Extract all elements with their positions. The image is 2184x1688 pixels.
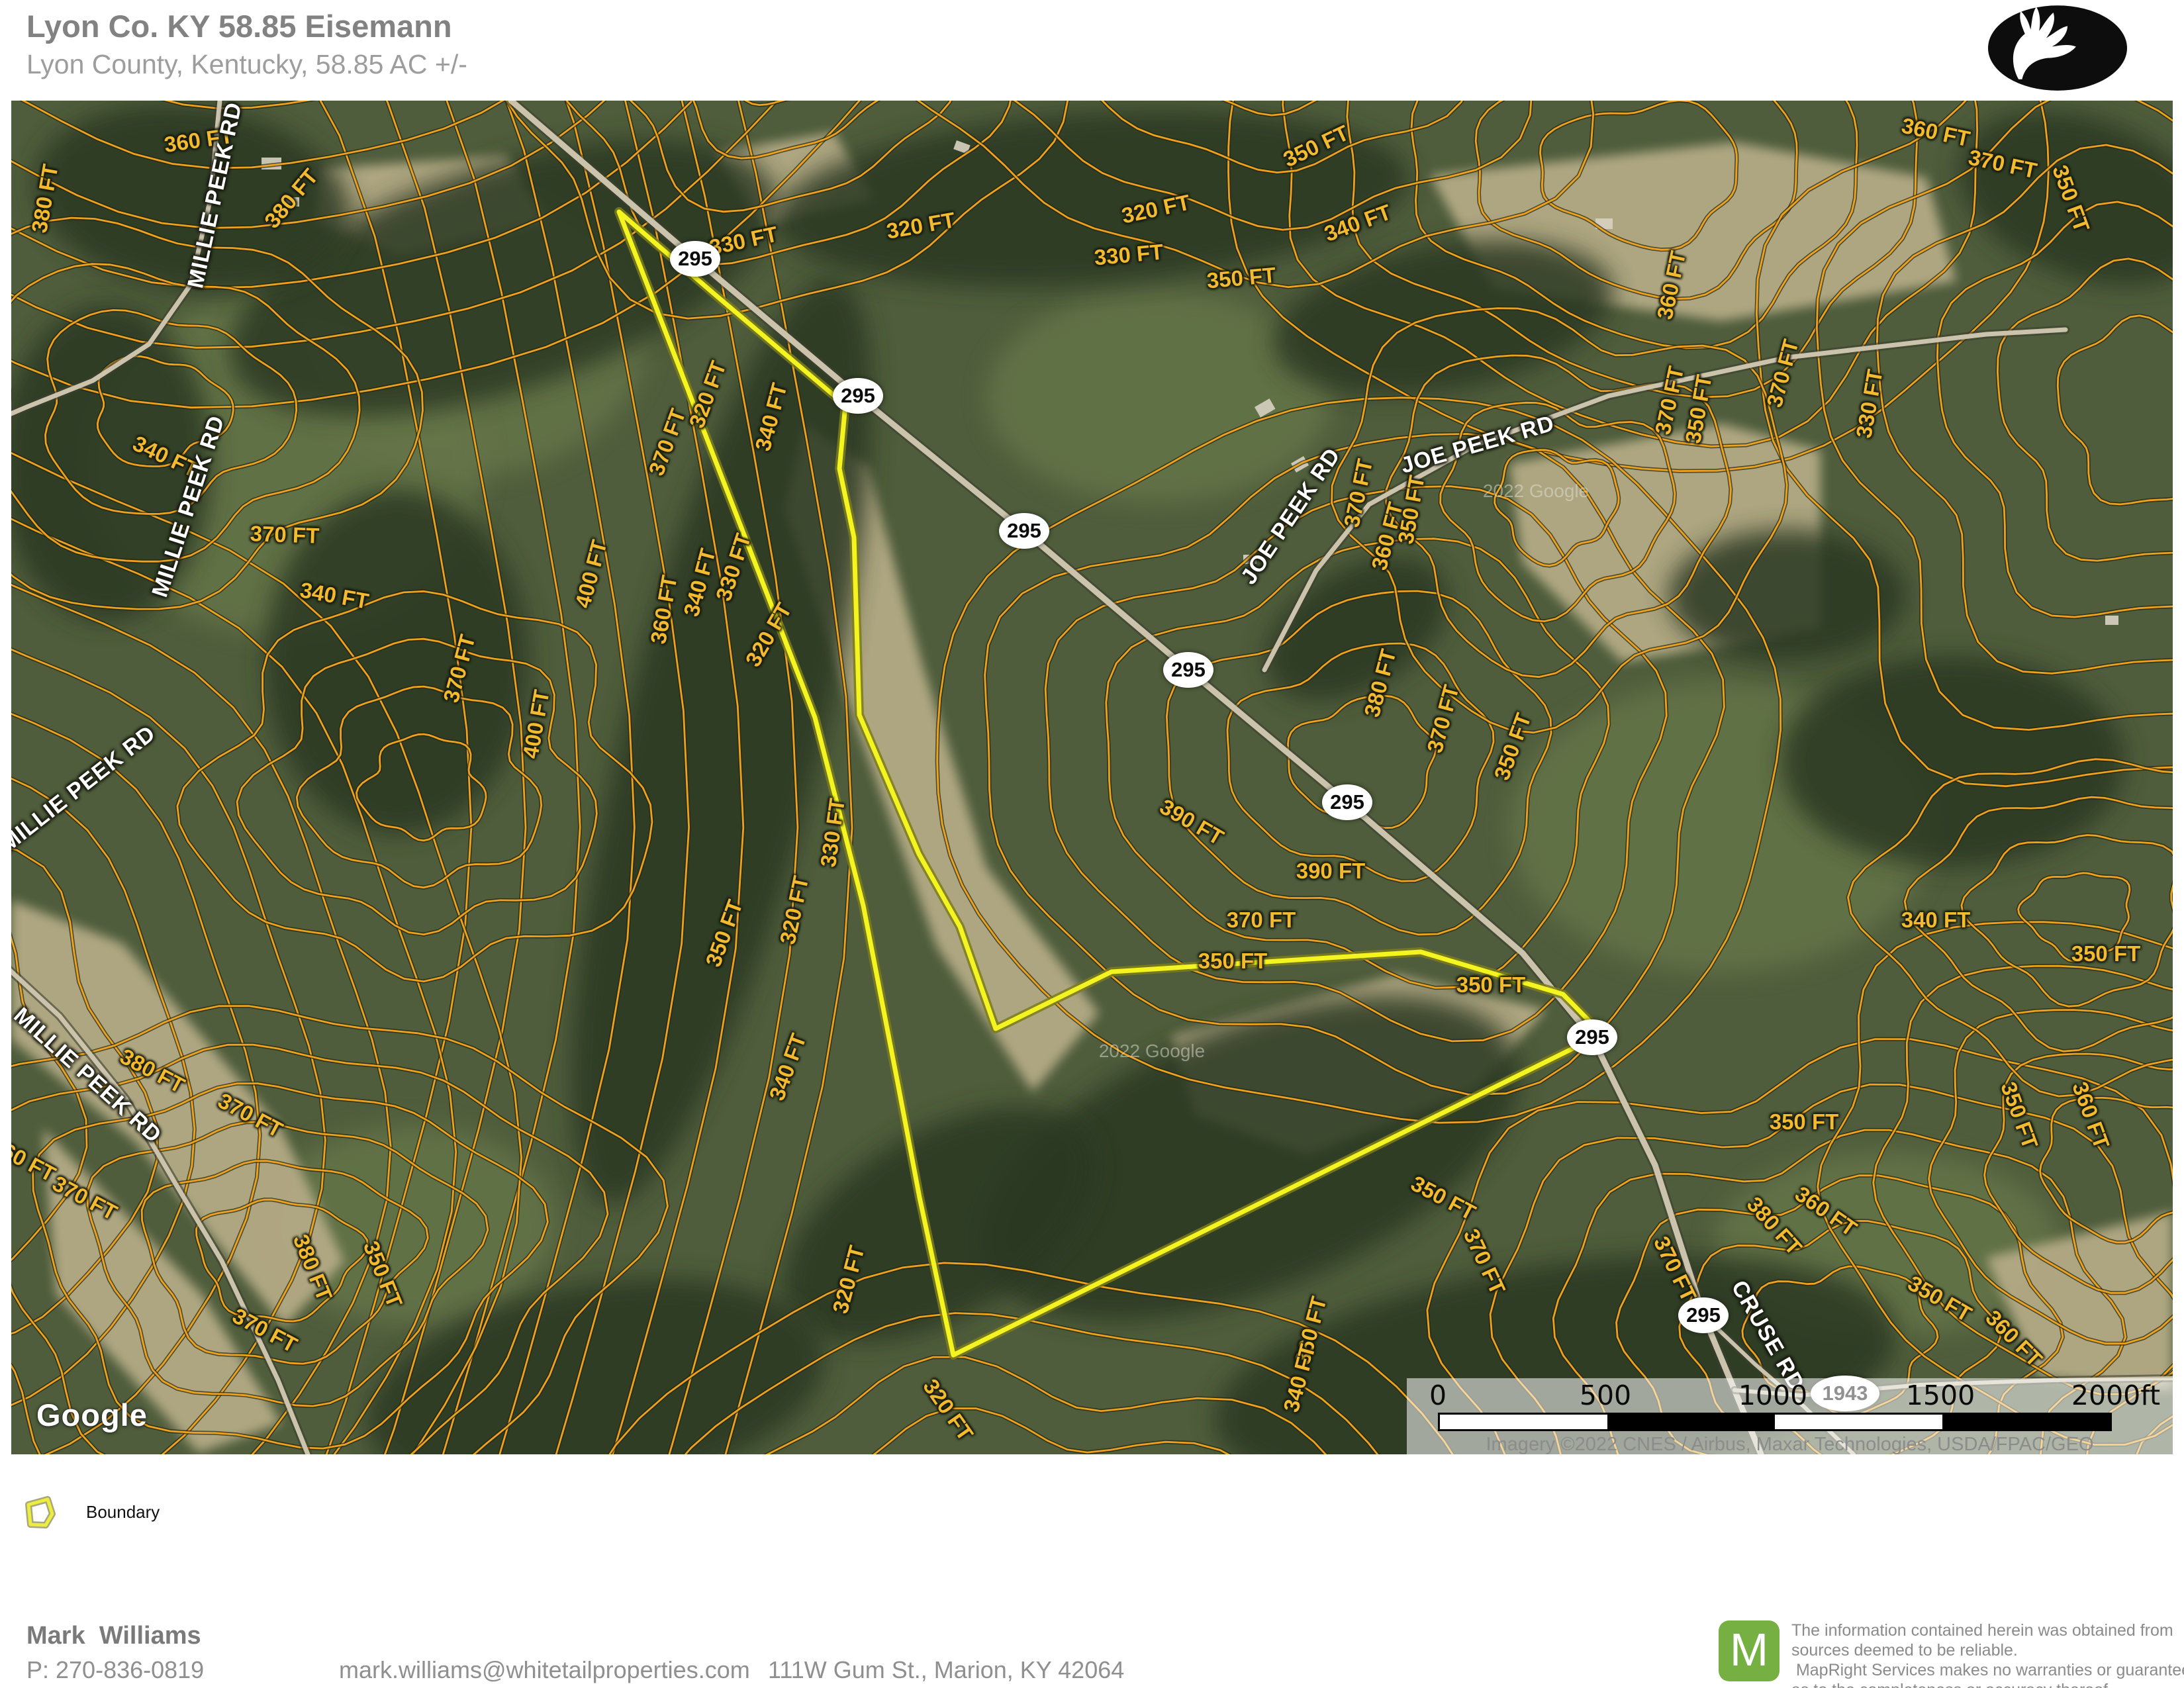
contour-elevation-label: 340 FT	[764, 1030, 811, 1103]
scale-segment	[1942, 1415, 2110, 1429]
contour-elevation-label: 360 FT	[1981, 1305, 2048, 1372]
contour-elevation-label: 350 FT	[1198, 949, 1268, 974]
contour-elevation-label: 340 FT	[1278, 1342, 1321, 1415]
contour-elevation-label: 370 FT	[1339, 457, 1378, 530]
contour-elevation-label: 370 FT	[438, 632, 481, 706]
contour-elevation-label: 320 FT	[918, 1374, 978, 1445]
map-label-layer: 2022 Google2022 Google360 FT380 FT380 FT…	[11, 101, 2173, 1454]
contour-elevation-label: 370 FT	[1966, 145, 2039, 184]
route-shield: 295	[1567, 1019, 1617, 1055]
contour-elevation-label: 350 FT	[358, 1237, 407, 1311]
contour-elevation-label: 370 FT	[228, 1303, 301, 1358]
contour-elevation-label: 370 FT	[1227, 908, 1296, 933]
agent-phone: P: 270-836-0819	[26, 1656, 204, 1684]
contour-elevation-label: 320 FT	[740, 598, 796, 671]
contour-elevation-label: 330 FT	[816, 797, 850, 869]
contour-elevation-label: 370 FT	[48, 1171, 121, 1226]
contour-elevation-label: 350 FT	[1280, 120, 1353, 173]
contour-elevation-label: 340 FT	[1901, 908, 1971, 933]
road-label: JOE PEEK RD	[1236, 444, 1346, 589]
contour-elevation-label: 320 FT	[775, 874, 814, 947]
contour-elevation-label: 400 FT	[518, 688, 555, 761]
contour-elevation-label: 360 FT	[1899, 113, 1972, 152]
contour-elevation-label: 350 FT	[1770, 1109, 1839, 1135]
page-title: Lyon Co. KY 58.85 Eisemann	[26, 8, 452, 44]
contour-elevation-label: 340 FT	[750, 381, 792, 454]
agent-address: 111W Gum St., Marion, KY 42064	[768, 1656, 1124, 1684]
contour-elevation-label: 350 FT	[1393, 473, 1430, 546]
contour-elevation-label: 320 FT	[884, 207, 957, 244]
google-logo: Google	[36, 1397, 148, 1433]
route-shield: 295	[670, 241, 720, 277]
antler-icon	[1979, 3, 2136, 102]
route-shield: 295	[1322, 784, 1372, 820]
contour-elevation-label: 330 FT	[711, 530, 756, 604]
contour-elevation-label: 390 FT	[1155, 794, 1228, 850]
contour-elevation-label: 330 FT	[1093, 240, 1164, 271]
contour-elevation-label: 350 FT	[1456, 972, 1526, 998]
contour-elevation-label: 360 FT	[11, 1133, 60, 1188]
contour-elevation-label: 370 FT	[643, 405, 690, 479]
contour-elevation-label: 350 FT	[1489, 710, 1536, 783]
contour-elevation-label: 320 FT	[684, 357, 731, 431]
contour-elevation-label: 370 FT	[214, 1088, 287, 1143]
agent-name: Mark Williams	[26, 1622, 201, 1650]
contour-elevation-label: 350 FT	[1995, 1078, 2042, 1152]
scale-number: 0	[1429, 1380, 1447, 1411]
road-label: JOE PEEK RD	[1398, 410, 1557, 479]
contour-elevation-label: 350 FT	[2071, 941, 2141, 966]
contour-elevation-label: 330 FT	[1851, 367, 1888, 440]
contour-elevation-label: 350 FT	[700, 896, 747, 970]
scale-number: 1500	[1906, 1380, 1975, 1411]
contour-elevation-label: 360 FT	[1652, 249, 1691, 322]
contour-elevation-label: 320 FT	[1119, 190, 1192, 229]
boundary-legend-icon	[20, 1493, 60, 1530]
contour-elevation-label: 370 FT	[1648, 1233, 1701, 1306]
legend-item-boundary: Boundary	[86, 1502, 160, 1523]
scale-panel: 0500100015002000ft Imagery ©2022 CNES / …	[1407, 1378, 2173, 1454]
contour-elevation-label: 340 FT	[298, 577, 371, 614]
map-canvas: 2022 Google2022 Google360 FT380 FT380 FT…	[11, 101, 2173, 1454]
contour-elevation-label: 380 FT	[1359, 647, 1401, 720]
contour-elevation-label: 370 FT	[1762, 337, 1804, 410]
contour-elevation-label: 360 FT	[2067, 1078, 2114, 1152]
property-flyer-page: Lyon Co. KY 58.85 Eisemann Lyon County, …	[0, 0, 2184, 1688]
contour-elevation-label: 370 FT	[250, 521, 320, 549]
mapright-logo: M	[1719, 1620, 1780, 1681]
contour-elevation-label: 400 FT	[570, 538, 612, 611]
contour-elevation-label: 380 FT	[288, 1231, 337, 1304]
contour-elevation-label: 380 FT	[116, 1044, 189, 1099]
contour-elevation-label: 380 FT	[260, 164, 323, 234]
route-shield: 295	[833, 378, 883, 414]
contour-elevation-label: 340 FT	[1321, 199, 1394, 246]
contour-elevation-label: 390 FT	[1296, 859, 1366, 884]
legend: Boundary	[20, 1493, 160, 1530]
imagery-attribution: Imagery ©2022 CNES / Airbus, Maxar Techn…	[1407, 1434, 2173, 1454]
disclaimer-text: The information contained herein was obt…	[1791, 1620, 2184, 1688]
scale-number: 2000ft	[2071, 1380, 2160, 1411]
contour-elevation-label: 380 FT	[26, 162, 64, 235]
contour-elevation-label: 360 FT	[1790, 1181, 1861, 1241]
contour-elevation-label: 370 FT	[1422, 682, 1464, 756]
scale-segment	[1607, 1415, 1775, 1429]
scale-number: 1000	[1738, 1380, 1807, 1411]
scale-number: 500	[1580, 1380, 1631, 1411]
contour-elevation-label: 350 FT	[1206, 263, 1276, 294]
route-shield: 295	[1163, 652, 1213, 688]
scale-segment	[1775, 1415, 1942, 1429]
page-subtitle: Lyon County, Kentucky, 58.85 AC +/-	[26, 49, 467, 80]
contour-elevation-label: 350 FT	[1407, 1171, 1480, 1226]
scale-segment	[1440, 1415, 1607, 1429]
scale-bar	[1438, 1413, 2112, 1431]
contour-elevation-label: 350 FT	[2047, 162, 2094, 235]
agent-email: mark.williams@whitetailproperties.com	[339, 1656, 750, 1684]
route-shield: 295	[1678, 1297, 1729, 1333]
map-watermark: 2022 Google	[1483, 481, 1589, 502]
road-label: MILLIE PEEK RD	[11, 721, 161, 858]
map-watermark: 2022 Google	[1099, 1041, 1205, 1062]
contour-elevation-label: 370 FT	[1458, 1225, 1511, 1299]
route-shield: 295	[999, 513, 1049, 549]
contour-elevation-label: 320 FT	[828, 1243, 870, 1317]
contour-elevation-label: 350 FT	[1903, 1270, 1976, 1327]
contour-elevation-label: 360 FT	[645, 573, 683, 646]
